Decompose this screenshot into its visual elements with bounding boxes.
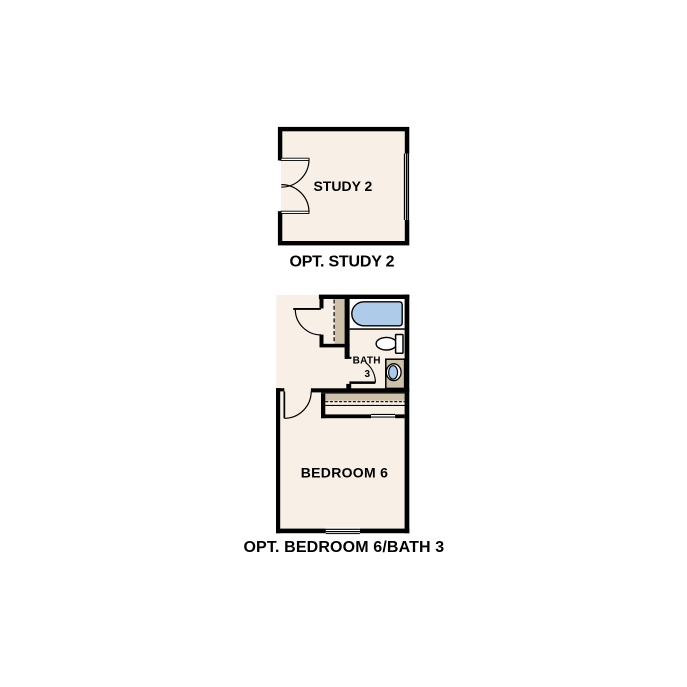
svg-text:BEDROOM 6: BEDROOM 6: [301, 465, 389, 481]
svg-text:OPT. BEDROOM 6/BATH 3: OPT. BEDROOM 6/BATH 3: [243, 539, 444, 556]
svg-text:BATH: BATH: [353, 356, 381, 367]
svg-text:OPT. STUDY 2: OPT. STUDY 2: [289, 253, 394, 270]
svg-text:3: 3: [365, 369, 371, 380]
svg-text:STUDY 2: STUDY 2: [313, 178, 372, 194]
